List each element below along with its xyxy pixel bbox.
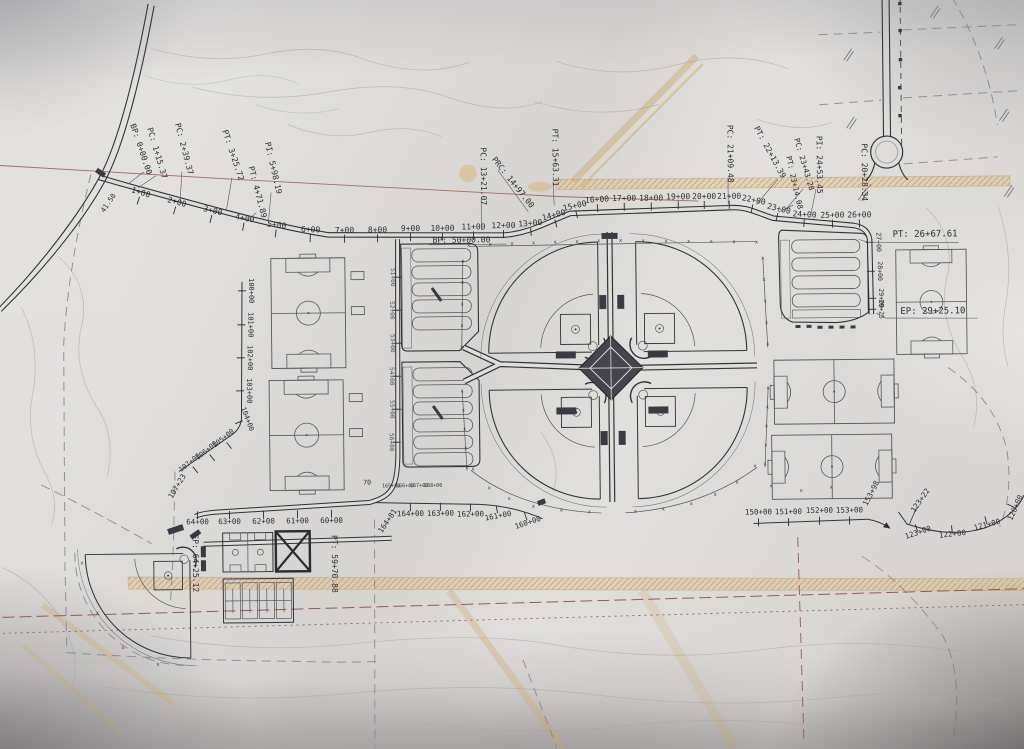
station-marker: 163+00 bbox=[427, 503, 455, 518]
station-label: 151+00 bbox=[775, 507, 803, 516]
fence-mark: x bbox=[800, 488, 803, 494]
southeast-path-line bbox=[754, 519, 868, 523]
label-pc-2: PC: 2+39.37 bbox=[173, 122, 195, 176]
station-label: 63+00 bbox=[218, 517, 241, 526]
fence-mark: x bbox=[560, 507, 563, 513]
station-label: 54+00 bbox=[388, 367, 395, 386]
station-label: 10+00 bbox=[430, 224, 454, 233]
fence-mark: x bbox=[575, 239, 578, 245]
photo-of-site-plan: 1+002+003+004+005+006+007+008+009+0010+0… bbox=[0, 0, 1024, 749]
fence-mark: x bbox=[532, 504, 535, 510]
label-pc-13: PC: 13+21.07 bbox=[479, 147, 489, 205]
northeast-parking-lot bbox=[779, 229, 869, 329]
station-label: 152+00 bbox=[806, 506, 834, 515]
station-marker: 7+00 bbox=[335, 226, 355, 243]
fence-mark: x bbox=[460, 345, 463, 351]
station-marker: 164+00 bbox=[397, 503, 425, 518]
subdivision-street bbox=[882, 0, 890, 137]
station-marker: 103+00 bbox=[236, 378, 253, 403]
label-pi-5: PI: 5+98.19 bbox=[263, 141, 283, 195]
soccer-field-west-1 bbox=[271, 254, 346, 373]
station-label: 121+00 bbox=[973, 517, 1002, 533]
label-pt-59: PT: 59+70.88 bbox=[330, 535, 340, 593]
station-marker: 17+00 bbox=[612, 194, 636, 211]
highlighted-existing-roads bbox=[17, 53, 1024, 749]
fence-mark: x bbox=[597, 238, 600, 244]
fence-mark: x bbox=[471, 466, 474, 472]
station-labels: 1+002+003+004+005+006+007+008+009+0010+0… bbox=[128, 176, 1024, 549]
fence-mark: x bbox=[714, 492, 717, 498]
fence-mark: x bbox=[460, 323, 463, 329]
station-label: 56+00 bbox=[388, 433, 395, 452]
station-label: 18+00 bbox=[639, 193, 663, 202]
fence-mark: x bbox=[80, 560, 83, 566]
fence-mark: x bbox=[770, 483, 773, 489]
fence-mark: x bbox=[764, 298, 767, 304]
fence-mark: x bbox=[554, 240, 557, 246]
label-ep-29: EP: 29+25.10 bbox=[900, 306, 965, 317]
fence-mark: x bbox=[532, 240, 535, 246]
fence-mark: x bbox=[461, 258, 464, 264]
station-marker: 151+00 bbox=[775, 507, 803, 526]
lot-label-smudge bbox=[846, 117, 856, 130]
fence-mark: x bbox=[766, 404, 769, 410]
station-label: 51+00 bbox=[389, 268, 396, 287]
station-label: 3+00 bbox=[202, 204, 223, 217]
lot-lines bbox=[818, 0, 1020, 165]
station-label: 163+00 bbox=[427, 509, 455, 518]
label-ep-64: EP: 64+25.12 bbox=[191, 534, 201, 592]
fence-mark: x bbox=[761, 255, 764, 261]
station-label: 5+00 bbox=[267, 219, 287, 230]
label-pt-15: PT: 15+63.31 bbox=[550, 129, 560, 187]
fence-mark: x bbox=[830, 485, 833, 491]
station-marker: 3+00 bbox=[201, 204, 224, 225]
fence-mark: x bbox=[753, 463, 756, 469]
station-label: 102+00 bbox=[246, 345, 254, 370]
station-marker: 121+00 bbox=[972, 513, 1002, 533]
fence-mark: x bbox=[461, 280, 464, 286]
station-label: 162+00 bbox=[457, 509, 485, 518]
label-pc-21: PC: 21+09.48 bbox=[725, 125, 735, 183]
station-marker: 8+00 bbox=[368, 225, 388, 242]
fence-mark: x bbox=[767, 385, 770, 391]
station-marker: 160+00 bbox=[512, 508, 543, 531]
fence-mark: x bbox=[755, 239, 758, 245]
lot-label-smudge bbox=[995, 37, 1005, 50]
station-label: 153+00 bbox=[836, 505, 864, 514]
soccer-fields-east bbox=[766, 245, 969, 499]
station-label: 168+00 bbox=[424, 483, 442, 489]
label-end-153: 153+98 bbox=[861, 479, 882, 508]
label-pt-22: PT: 22+13.39 bbox=[752, 125, 788, 180]
fence-mark: x bbox=[464, 445, 467, 451]
label-point-123: 123+22 bbox=[909, 487, 932, 514]
label-corner-70: 70 bbox=[363, 478, 371, 486]
label-pt-4: PT: 4+71.89 bbox=[246, 165, 268, 219]
station-label: 20+00 bbox=[692, 192, 716, 201]
fence-mark: x bbox=[634, 509, 637, 515]
station-label: 1+00 bbox=[130, 185, 151, 199]
west-loop-road bbox=[193, 239, 401, 516]
fence-mark: x bbox=[465, 464, 468, 470]
fence-mark: x bbox=[462, 407, 465, 413]
existing-road-diagonal bbox=[572, 56, 698, 181]
label-pc-20: PC: 20+28.34 bbox=[860, 143, 870, 201]
station-marker: 150+00 bbox=[745, 507, 773, 526]
station-label: 16+00 bbox=[585, 194, 610, 205]
fence-mark: x bbox=[510, 241, 513, 247]
baseball-field-nw bbox=[480, 234, 606, 360]
fence-mark: x bbox=[121, 645, 124, 651]
fence-mark: x bbox=[764, 442, 767, 448]
station-marker: 101+00 bbox=[237, 312, 254, 337]
label-bp-50: BP: 50+00.00 bbox=[433, 235, 491, 245]
fence-mark: x bbox=[766, 341, 769, 347]
central-parking-lots bbox=[401, 243, 480, 467]
station-label: 17+00 bbox=[612, 194, 636, 203]
station-label: 161+00 bbox=[484, 509, 513, 523]
station-marker: 4+00 bbox=[233, 212, 255, 232]
baseball-field-southwest bbox=[78, 547, 198, 667]
station-label: 101+00 bbox=[246, 312, 254, 337]
station-label: 7+00 bbox=[335, 226, 355, 235]
fence-mark: x bbox=[687, 239, 690, 245]
fence-mark: x bbox=[461, 302, 464, 308]
station-marker: 61+00 bbox=[286, 510, 309, 525]
station-marker: 104+00 bbox=[231, 406, 256, 436]
fence-mark: x bbox=[690, 501, 693, 507]
label-dim-note: 41.50 bbox=[99, 192, 118, 214]
fence-mark: x bbox=[488, 485, 491, 491]
station-marker: 62+00 bbox=[252, 510, 275, 525]
station-label: 62+00 bbox=[252, 516, 275, 525]
soccer-field-east-2 bbox=[770, 359, 899, 424]
label-end-107: 107+23 bbox=[166, 472, 188, 500]
soccer-field-west-2 bbox=[269, 376, 344, 495]
fence-mark: x bbox=[662, 506, 665, 512]
station-label: 100+00 bbox=[247, 278, 255, 303]
station-marker: 102+00 bbox=[237, 345, 254, 370]
station-label: 24+00 bbox=[792, 209, 817, 219]
station-marker: 168+00 bbox=[424, 483, 442, 489]
station-marker: 9+00 bbox=[401, 224, 421, 241]
parking-edge-dots bbox=[796, 324, 856, 329]
station-marker: 100+00 bbox=[238, 278, 255, 303]
fence-mark: x bbox=[710, 239, 713, 245]
existing-highway-northwest bbox=[0, 4, 157, 312]
station-marker: 60+00 bbox=[320, 510, 343, 525]
station-label: 150+00 bbox=[745, 507, 773, 516]
subdivision-northeast bbox=[818, 0, 1020, 181]
station-label: 23+00 bbox=[766, 202, 792, 216]
station-label: 21+00 bbox=[717, 192, 741, 201]
lot-label-smudge bbox=[930, 6, 940, 19]
station-label: 19+00 bbox=[666, 192, 690, 201]
baseball-field-sw bbox=[481, 382, 607, 508]
station-label: 25+00 bbox=[820, 211, 844, 220]
fence-mark: x bbox=[763, 461, 766, 467]
station-label: 107+00 bbox=[177, 452, 202, 474]
station-label: 120+00 bbox=[1005, 493, 1024, 522]
basketball-courts bbox=[223, 533, 273, 573]
station-label: 64+00 bbox=[186, 517, 209, 526]
lot-label-smudge bbox=[999, 109, 1009, 122]
bench-pads bbox=[348, 272, 366, 437]
site-plan-drawing: 1+002+003+004+005+006+007+008+009+0010+0… bbox=[0, 0, 1024, 749]
station-label: 123+00 bbox=[904, 524, 933, 541]
baseball-field-ne bbox=[629, 232, 755, 358]
fence-mark: x bbox=[96, 610, 99, 616]
fence-mark: x bbox=[765, 320, 768, 326]
station-label: 11+00 bbox=[461, 222, 485, 231]
station-label: 60+00 bbox=[320, 516, 343, 525]
station-label: 61+00 bbox=[286, 516, 309, 525]
station-marker: 152+00 bbox=[806, 506, 834, 525]
lot-label-smudge bbox=[1004, 185, 1014, 198]
station-marker: 122+00 bbox=[938, 524, 967, 540]
soccer-field-east-1 bbox=[896, 245, 967, 358]
station-label: 122+00 bbox=[938, 528, 966, 540]
station-label: 22+00 bbox=[741, 193, 767, 207]
station-label: 160+00 bbox=[514, 514, 543, 531]
station-label: 2+00 bbox=[166, 195, 187, 209]
pavilion bbox=[276, 531, 310, 571]
station-label: 8+00 bbox=[368, 225, 388, 234]
label-pt-26: PT: 26+67.61 bbox=[893, 229, 958, 240]
station-label: 52+00 bbox=[388, 301, 395, 320]
station-label: 12+00 bbox=[491, 221, 515, 230]
station-label: 53+00 bbox=[389, 334, 396, 353]
fence-mark: x bbox=[732, 239, 735, 245]
station-marker: 153+00 bbox=[836, 505, 864, 524]
fence-mark: x bbox=[619, 238, 622, 244]
lot-label-smudge bbox=[844, 49, 854, 62]
fence-mark: x bbox=[463, 426, 466, 432]
station-label: 26+00 bbox=[847, 210, 871, 219]
fence-mark: x bbox=[461, 389, 464, 395]
fence-mark: x bbox=[508, 496, 511, 502]
station-label: 4+00 bbox=[235, 212, 256, 224]
station-marker: 5+00 bbox=[266, 219, 287, 238]
station-paths bbox=[177, 274, 1024, 541]
fence-mark: x bbox=[588, 509, 591, 515]
station-marker: 162+00 bbox=[457, 503, 485, 518]
fence-mark: x bbox=[642, 238, 645, 244]
station-marker: 6+00 bbox=[300, 225, 320, 243]
station-label: 9+00 bbox=[401, 224, 421, 233]
station-label: 103+00 bbox=[245, 378, 253, 403]
baseball-field-se bbox=[630, 381, 756, 507]
station-label: 28+00 bbox=[876, 261, 884, 281]
label-end-164: 164+81 bbox=[376, 507, 399, 534]
label-pt-3: PT: 3+25.72 bbox=[220, 129, 245, 182]
station-marker: 120+00 bbox=[1002, 491, 1024, 521]
fence-mark: x bbox=[156, 662, 159, 668]
label-prc-14: PRC: 14+97.00 bbox=[490, 155, 536, 210]
fence-mark: x bbox=[664, 238, 667, 244]
station-marker: 2+00 bbox=[164, 195, 187, 217]
fence-mark: x bbox=[762, 277, 765, 283]
station-label: 164+00 bbox=[397, 509, 425, 518]
station-label: 55+00 bbox=[388, 400, 395, 419]
soccer-fields-west bbox=[268, 254, 367, 495]
label-pi-24: PI: 24+53.45 bbox=[815, 136, 825, 194]
fence-mark: x bbox=[765, 423, 768, 429]
fence-mark: x bbox=[736, 480, 739, 486]
existing-road-south bbox=[128, 568, 1024, 600]
station-label: 6+00 bbox=[301, 225, 321, 235]
